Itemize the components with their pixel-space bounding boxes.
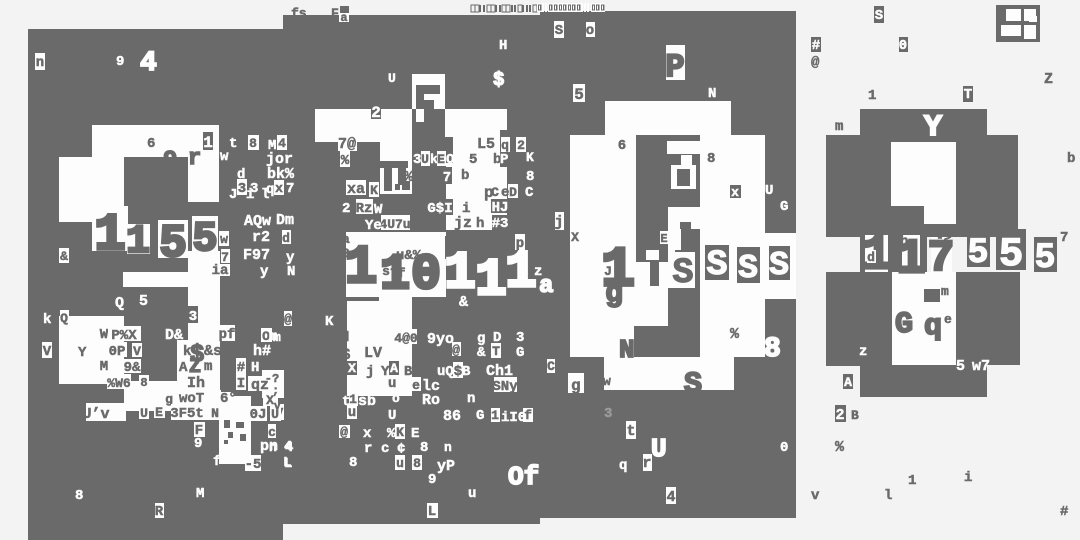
svg-text:y: y <box>260 264 269 280</box>
svg-text:G: G <box>895 308 913 342</box>
svg-text:3: 3 <box>516 330 524 346</box>
svg-text:2: 2 <box>517 138 525 153</box>
svg-text:7@: 7@ <box>338 136 356 153</box>
svg-text:W: W <box>100 327 109 343</box>
svg-text:P%X: P%X <box>111 328 137 344</box>
svg-text:9: 9 <box>116 54 124 70</box>
svg-text:7f: 7f <box>390 266 406 281</box>
svg-text:C: C <box>525 185 534 201</box>
svg-text:%: % <box>341 153 350 169</box>
svg-text:w7: w7 <box>972 358 990 375</box>
svg-text:#: # <box>1060 504 1068 520</box>
svg-text:K: K <box>526 150 534 165</box>
svg-text:5: 5 <box>999 232 1024 278</box>
svg-text:P: P <box>500 152 508 168</box>
svg-text:h: h <box>900 234 908 250</box>
svg-text:3: 3 <box>413 152 421 168</box>
svg-text:1: 1 <box>908 473 916 489</box>
svg-text:I: I <box>237 376 245 392</box>
svg-text:7: 7 <box>443 170 451 186</box>
svg-text:A: A <box>179 360 188 376</box>
svg-text:4: 4 <box>666 489 675 506</box>
svg-text:8: 8 <box>75 488 83 504</box>
svg-text:$: $ <box>493 69 504 91</box>
svg-text:S: S <box>672 253 693 293</box>
svg-text:Q: Q <box>115 295 124 312</box>
svg-text:;: ; <box>272 384 279 398</box>
svg-text:4: 4 <box>284 439 292 455</box>
svg-text:ia: ia <box>212 263 229 279</box>
svg-text:U: U <box>388 71 396 86</box>
svg-text:l: l <box>261 187 269 203</box>
svg-text:fs: fs <box>291 6 307 21</box>
svg-text:e: e <box>412 378 420 393</box>
svg-text:3F5t: 3F5t <box>170 406 204 422</box>
svg-text:S: S <box>769 247 789 284</box>
svg-text:q: q <box>619 458 627 474</box>
svg-text:$: $ <box>454 364 462 380</box>
svg-text:9yo: 9yo <box>427 331 454 348</box>
svg-text:F97: F97 <box>243 247 270 264</box>
svg-text:U: U <box>421 152 429 167</box>
svg-text:u: u <box>468 486 476 502</box>
svg-text:E: E <box>660 232 667 246</box>
svg-text:8: 8 <box>249 136 257 151</box>
svg-text:P: P <box>665 49 684 86</box>
svg-text:7: 7 <box>221 250 229 265</box>
svg-text:O: O <box>446 152 454 168</box>
svg-text:j: j <box>554 214 563 231</box>
svg-text:5: 5 <box>469 152 477 168</box>
svg-text:Z: Z <box>210 165 219 182</box>
svg-text:%: % <box>404 169 414 186</box>
svg-text:2: 2 <box>835 407 844 424</box>
svg-text:z: z <box>859 344 867 360</box>
svg-text:3: 3 <box>238 181 246 197</box>
svg-text:G: G <box>516 345 524 361</box>
svg-text:w: w <box>603 374 611 389</box>
svg-text:-5: -5 <box>245 457 262 473</box>
svg-text:3: 3 <box>189 309 197 325</box>
svg-text:G: G <box>780 199 788 215</box>
svg-text:8: 8 <box>413 456 421 471</box>
svg-text:S: S <box>738 250 758 287</box>
svg-text:&: & <box>477 345 486 361</box>
svg-text:8: 8 <box>707 151 715 167</box>
svg-text:k: k <box>43 312 51 328</box>
svg-text:6: 6 <box>618 138 626 154</box>
svg-text:r: r <box>188 146 201 171</box>
svg-text:M: M <box>100 359 108 375</box>
svg-text:n: n <box>36 55 44 71</box>
svg-text:AQw: AQw <box>244 213 271 230</box>
svg-text:d: d <box>867 250 875 265</box>
svg-text:E: E <box>411 426 419 442</box>
svg-text:4: 4 <box>140 48 157 79</box>
svg-text:yP: yP <box>437 458 455 475</box>
svg-text:#3: #3 <box>492 216 509 232</box>
svg-text:h: h <box>476 216 484 232</box>
svg-text:v: v <box>274 401 281 413</box>
svg-text:S: S <box>684 368 702 402</box>
svg-text:m: m <box>204 359 212 375</box>
svg-text:Ro: Ro <box>422 392 440 409</box>
svg-text:0: 0 <box>780 440 788 456</box>
svg-text:K: K <box>370 183 378 198</box>
svg-text:3: 3 <box>604 406 612 422</box>
svg-text:x: x <box>731 185 739 200</box>
svg-text:1: 1 <box>868 88 876 104</box>
svg-text:W: W <box>374 202 383 218</box>
svg-text:o: o <box>586 23 594 39</box>
svg-text:%: % <box>835 439 845 456</box>
svg-text:t: t <box>342 394 350 410</box>
svg-text:iI0: iI0 <box>501 410 526 426</box>
svg-text:@: @ <box>811 55 820 71</box>
svg-text:V: V <box>43 344 52 360</box>
svg-text:k: k <box>430 152 438 167</box>
svg-text:d: d <box>237 167 245 183</box>
svg-text:f: f <box>213 454 221 470</box>
svg-text:u&%: u&% <box>396 248 422 264</box>
svg-text:F: F <box>331 6 339 21</box>
svg-text:L: L <box>428 504 436 520</box>
svg-text:woT: woT <box>179 391 204 407</box>
svg-text:0: 0 <box>899 38 907 54</box>
svg-text:4: 4 <box>278 136 286 151</box>
svg-text:5: 5 <box>192 215 217 263</box>
svg-text:4U7u: 4U7u <box>379 217 410 232</box>
svg-text:Rz: Rz <box>356 201 373 217</box>
svg-text:@: @ <box>340 425 348 440</box>
svg-text:V: V <box>133 344 141 359</box>
svg-text:Of: Of <box>508 462 539 492</box>
svg-text:6°: 6° <box>220 391 237 407</box>
svg-text:C: C <box>547 359 555 374</box>
svg-text:e: e <box>501 185 509 201</box>
svg-text:->: -> <box>936 230 952 245</box>
svg-text:8: 8 <box>140 376 147 390</box>
svg-text:B: B <box>462 364 471 380</box>
svg-text:e: e <box>944 312 952 327</box>
svg-text:SNy: SNy <box>492 379 518 395</box>
svg-text:%: % <box>387 426 396 442</box>
svg-text:r2: r2 <box>252 229 270 246</box>
svg-text:jz: jz <box>454 215 472 232</box>
svg-text:9&: 9& <box>124 360 141 376</box>
svg-text:b: b <box>1067 151 1075 167</box>
svg-text:A: A <box>390 361 398 376</box>
svg-text:J: J <box>229 187 237 203</box>
svg-text:L: L <box>283 455 291 471</box>
svg-text:%: % <box>730 326 740 343</box>
svg-text:5: 5 <box>967 233 988 273</box>
svg-text:0J: 0J <box>250 407 267 423</box>
svg-text:Z: Z <box>189 356 201 379</box>
svg-text:d: d <box>341 330 349 346</box>
svg-text:5: 5 <box>1034 238 1055 278</box>
svg-text:X: X <box>571 230 579 245</box>
svg-text:i: i <box>246 187 254 203</box>
svg-text:l: l <box>884 488 892 504</box>
svg-text:Q: Q <box>60 311 68 326</box>
svg-text:m: m <box>941 284 949 299</box>
svg-text:x: x <box>275 181 283 196</box>
svg-text:&: & <box>60 249 68 264</box>
svg-text:R: R <box>155 504 164 520</box>
svg-text:p: p <box>484 184 494 202</box>
svg-text:h#: h# <box>253 343 271 360</box>
svg-text:5: 5 <box>159 218 187 270</box>
svg-text:j: j <box>366 364 374 380</box>
svg-text:4@0: 4@0 <box>394 331 418 346</box>
svg-text:g: g <box>605 277 623 311</box>
svg-text:H: H <box>499 38 507 54</box>
svg-text:0: 0 <box>342 246 350 261</box>
svg-text:G: G <box>476 408 484 424</box>
svg-text:5: 5 <box>139 293 148 310</box>
svg-text:6: 6 <box>147 136 155 152</box>
svg-text:8: 8 <box>349 455 357 471</box>
svg-text:1: 1 <box>491 408 499 423</box>
svg-text:sb: sb <box>358 393 376 410</box>
svg-text:K: K <box>396 425 404 440</box>
svg-text:N: N <box>619 335 635 365</box>
svg-text:q: q <box>501 138 509 153</box>
svg-text:E: E <box>437 152 445 167</box>
svg-text:A: A <box>844 375 852 390</box>
svg-text:B: B <box>404 364 413 380</box>
svg-text:K: K <box>325 314 334 330</box>
svg-text:D: D <box>493 330 501 346</box>
svg-text:9: 9 <box>428 472 436 488</box>
svg-text:&s: &s <box>204 343 222 360</box>
svg-text:a: a <box>342 232 350 247</box>
svg-text:1: 1 <box>475 251 506 310</box>
svg-text:m: m <box>835 119 843 135</box>
svg-text:HJ: HJ <box>492 200 509 216</box>
svg-text:Y: Y <box>924 111 942 145</box>
svg-text:L5: L5 <box>477 136 495 153</box>
svg-text:U: U <box>388 408 396 424</box>
svg-text:E: E <box>155 405 163 420</box>
svg-text:8: 8 <box>420 440 428 456</box>
svg-text:@: @ <box>284 312 292 327</box>
svg-text:r: r <box>364 441 372 457</box>
svg-text:5: 5 <box>956 358 965 375</box>
svg-text:qz: qz <box>251 377 269 394</box>
svg-text:m: m <box>273 330 281 345</box>
svg-text:t: t <box>229 136 237 152</box>
svg-text:1: 1 <box>94 206 125 265</box>
svg-text:S: S <box>555 23 563 39</box>
svg-text:q: q <box>924 310 942 344</box>
svg-text:N: N <box>211 406 219 421</box>
svg-text:w: w <box>220 232 228 247</box>
svg-text:u: u <box>396 456 404 471</box>
svg-text:&: & <box>459 294 468 311</box>
svg-text:c: c <box>381 441 389 457</box>
svg-text:86: 86 <box>443 408 461 425</box>
svg-text:1: 1 <box>203 134 213 152</box>
svg-text:H: H <box>251 360 259 376</box>
svg-text:g: g <box>571 377 581 395</box>
svg-text:#: # <box>812 38 820 54</box>
svg-text:a: a <box>340 11 347 25</box>
svg-text:U: U <box>140 406 148 421</box>
svg-text:T: T <box>492 344 500 359</box>
svg-text:7: 7 <box>1060 230 1068 246</box>
svg-text:S: S <box>706 245 727 285</box>
svg-text:Y: Y <box>78 345 87 361</box>
svg-text:d: d <box>282 231 290 246</box>
svg-text:¢: ¢ <box>397 441 405 457</box>
svg-text:n: n <box>444 440 452 455</box>
svg-text:U: U <box>765 183 773 199</box>
svg-text:i: i <box>964 470 972 486</box>
svg-text:1: 1 <box>505 243 536 302</box>
svg-text:v: v <box>811 488 820 504</box>
svg-text:9: 9 <box>194 436 202 452</box>
svg-text:2: 2 <box>342 201 350 217</box>
svg-text:U’v: U’v <box>82 406 109 423</box>
svg-text:t: t <box>626 423 635 440</box>
svg-text:N: N <box>287 264 295 280</box>
svg-text:T: T <box>964 87 972 103</box>
svg-text:0P: 0P <box>109 344 126 360</box>
svg-text:LV: LV <box>364 345 382 362</box>
svg-text:w: w <box>220 149 229 165</box>
svg-text:G$I: G$I <box>427 201 452 217</box>
svg-text:%W6: %W6 <box>107 376 131 391</box>
svg-text:B: B <box>851 408 859 423</box>
svg-text:U: U <box>651 434 667 464</box>
svg-text:7: 7 <box>286 181 294 197</box>
svg-text:z: z <box>534 264 542 280</box>
svg-text:8: 8 <box>526 169 534 185</box>
svg-text:$: $ <box>341 346 351 364</box>
svg-text:#: # <box>237 360 245 376</box>
svg-text:M: M <box>196 486 204 502</box>
svg-text:9: 9 <box>163 148 177 175</box>
svg-text:xa: xa <box>347 181 365 198</box>
svg-text:ó: ó <box>392 391 400 406</box>
svg-text:n: n <box>467 391 475 407</box>
svg-text:Ch1: Ch1 <box>486 363 513 380</box>
svg-text:Ye: Ye <box>365 218 382 234</box>
svg-text:N: N <box>708 86 716 102</box>
svg-text:u: u <box>388 376 396 392</box>
svg-text:5: 5 <box>574 86 584 104</box>
svg-text:2: 2 <box>371 104 381 122</box>
svg-text:@2: @2 <box>425 169 442 185</box>
svg-text:Dm: Dm <box>276 212 294 229</box>
svg-text:Z: Z <box>1044 71 1053 88</box>
svg-text:x: x <box>363 426 372 442</box>
svg-text:b: b <box>461 168 469 184</box>
svg-text:pn: pn <box>260 438 278 455</box>
svg-text:1: 1 <box>126 220 150 265</box>
svg-text:D&: D& <box>165 327 183 344</box>
svg-text:S: S <box>875 8 883 24</box>
svg-text:8: 8 <box>764 334 781 365</box>
svg-text:pf: pf <box>219 327 236 343</box>
